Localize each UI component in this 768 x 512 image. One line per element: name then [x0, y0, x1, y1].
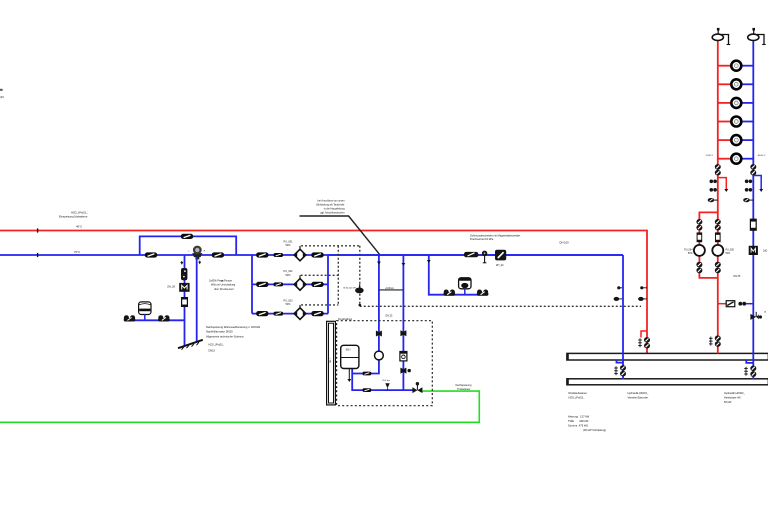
- svg-text:Nachspeisung: Nachspeisung: [456, 384, 472, 387]
- svg-text:DN 65: DN 65: [734, 275, 741, 278]
- svg-text:PU_002: PU_002: [283, 270, 293, 273]
- svg-text:50%: 50%: [285, 274, 291, 277]
- svg-text:Hydraulik HK001_: Hydraulik HK001_: [628, 391, 649, 395]
- svg-text:300 l: 300 l: [346, 350, 351, 352]
- svg-text:Heizung 127 kW: Heizung 127 kW: [568, 415, 590, 419]
- svg-text:Hydraulik HK002_: Hydraulik HK002_: [724, 391, 745, 395]
- svg-text:≥100mm: ≥100mm: [385, 287, 394, 290]
- svg-text:HZG_(Pv)01_: HZG_(Pv)01_: [71, 211, 88, 215]
- svg-text:ggf. Anschlussstutzen: ggf. Anschlussstutzen: [320, 211, 345, 214]
- svg-text:Rücklaufwasser: Rücklaufwasser: [569, 391, 587, 395]
- svg-text:780 l: 780 l: [330, 358, 332, 363]
- svg-text:Allgemeine technische Schema: Allgemeine technische Schema: [206, 334, 244, 338]
- svg-text:2xD: 2xD: [763, 250, 768, 253]
- svg-text:2x65% Pe■■ Pumpe: 2x65% Pe■■ Pumpe: [209, 279, 233, 282]
- svg-text:ZH_02: ZH_02: [496, 264, 504, 267]
- svg-text:Summe 475 kW: Summe 475 kW: [568, 424, 588, 428]
- svg-text:VL85°C: VL85°C: [706, 155, 714, 157]
- svg-text:R: R: [204, 250, 206, 252]
- svg-text:50%: 50%: [285, 303, 291, 306]
- svg-text:Heizkörper HK: Heizkörper HK: [724, 395, 741, 399]
- svg-text:HZG_(Pv)02_: HZG_(Pv)02_: [569, 395, 586, 399]
- svg-text:TWE 348 kW: TWE 348 kW: [568, 419, 589, 423]
- svg-text:PU_003: PU_003: [283, 299, 293, 302]
- svg-text:in die Hauptleitung: in die Hauptleitung: [324, 207, 345, 210]
- svg-text:HZG_(Pv)03_: HZG_(Pv)03_: [209, 344, 225, 347]
- svg-text:PU_004: PU_004: [684, 249, 693, 251]
- svg-text:Einbindung als Tauchrohr: Einbindung als Tauchrohr: [316, 203, 344, 206]
- svg-text:Verteiler/Sammler: Verteiler/Sammler: [628, 395, 649, 399]
- svg-text:50 kW: 50 kW: [724, 400, 732, 404]
- svg-text:RL60°C: RL60°C: [758, 155, 766, 157]
- svg-text:Wilo mit Umschaltung: Wilo mit Umschaltung: [211, 284, 236, 287]
- svg-text:50%: 50%: [688, 253, 693, 255]
- svg-text:70°C: 70°C: [74, 250, 80, 254]
- svg-text:Nachfüllarmatur DN20: Nachfüllarmatur DN20: [206, 330, 233, 334]
- svg-text:ZH_03: ZH_03: [167, 285, 175, 289]
- svg-text:(30 kW Vorhaltung): (30 kW Vorhaltung): [583, 428, 606, 432]
- svg-text:PU_001: PU_001: [283, 240, 293, 243]
- svg-text:PU_005: PU_005: [726, 249, 735, 251]
- svg-text:Druckhaltung: Druckhaltung: [338, 318, 353, 321]
- svg-text:50%: 50%: [285, 244, 291, 247]
- svg-text:M 60-100 kPa: M 60-100 kPa: [344, 288, 358, 290]
- svg-text:bei Anschluss von unten: bei Anschluss von unten: [318, 199, 346, 202]
- svg-text:DN 25: DN 25: [386, 314, 393, 317]
- svg-text:20,4 bar: 20,4 bar: [382, 379, 390, 382]
- svg-text:L: L: [189, 250, 191, 252]
- svg-text:Druckverlust 10 kPa: Druckverlust 10 kPa: [470, 237, 494, 241]
- svg-text:Nachspeisung Wärmeaufbereitung: Nachspeisung Wärmeaufbereitung n. DIN EN: [206, 325, 260, 329]
- svg-text:50%: 50%: [726, 253, 731, 255]
- svg-text:Schmutzabscheider mit Magnetit: Schmutzabscheider mit Magnetitabscheider: [470, 233, 520, 237]
- svg-text:(34: (34: [0, 95, 4, 99]
- svg-text:Einspeisung Nahwärme: Einspeisung Nahwärme: [59, 215, 88, 219]
- svg-text:über Drucksensor: über Drucksensor: [214, 288, 234, 291]
- svg-text:H: H: [765, 312, 767, 314]
- svg-text:DN15: DN15: [209, 349, 216, 352]
- svg-text:Trinkwasser: Trinkwasser: [457, 388, 471, 391]
- svg-text:DN 100: DN 100: [560, 241, 570, 245]
- svg-text:40°C: 40°C: [76, 225, 82, 229]
